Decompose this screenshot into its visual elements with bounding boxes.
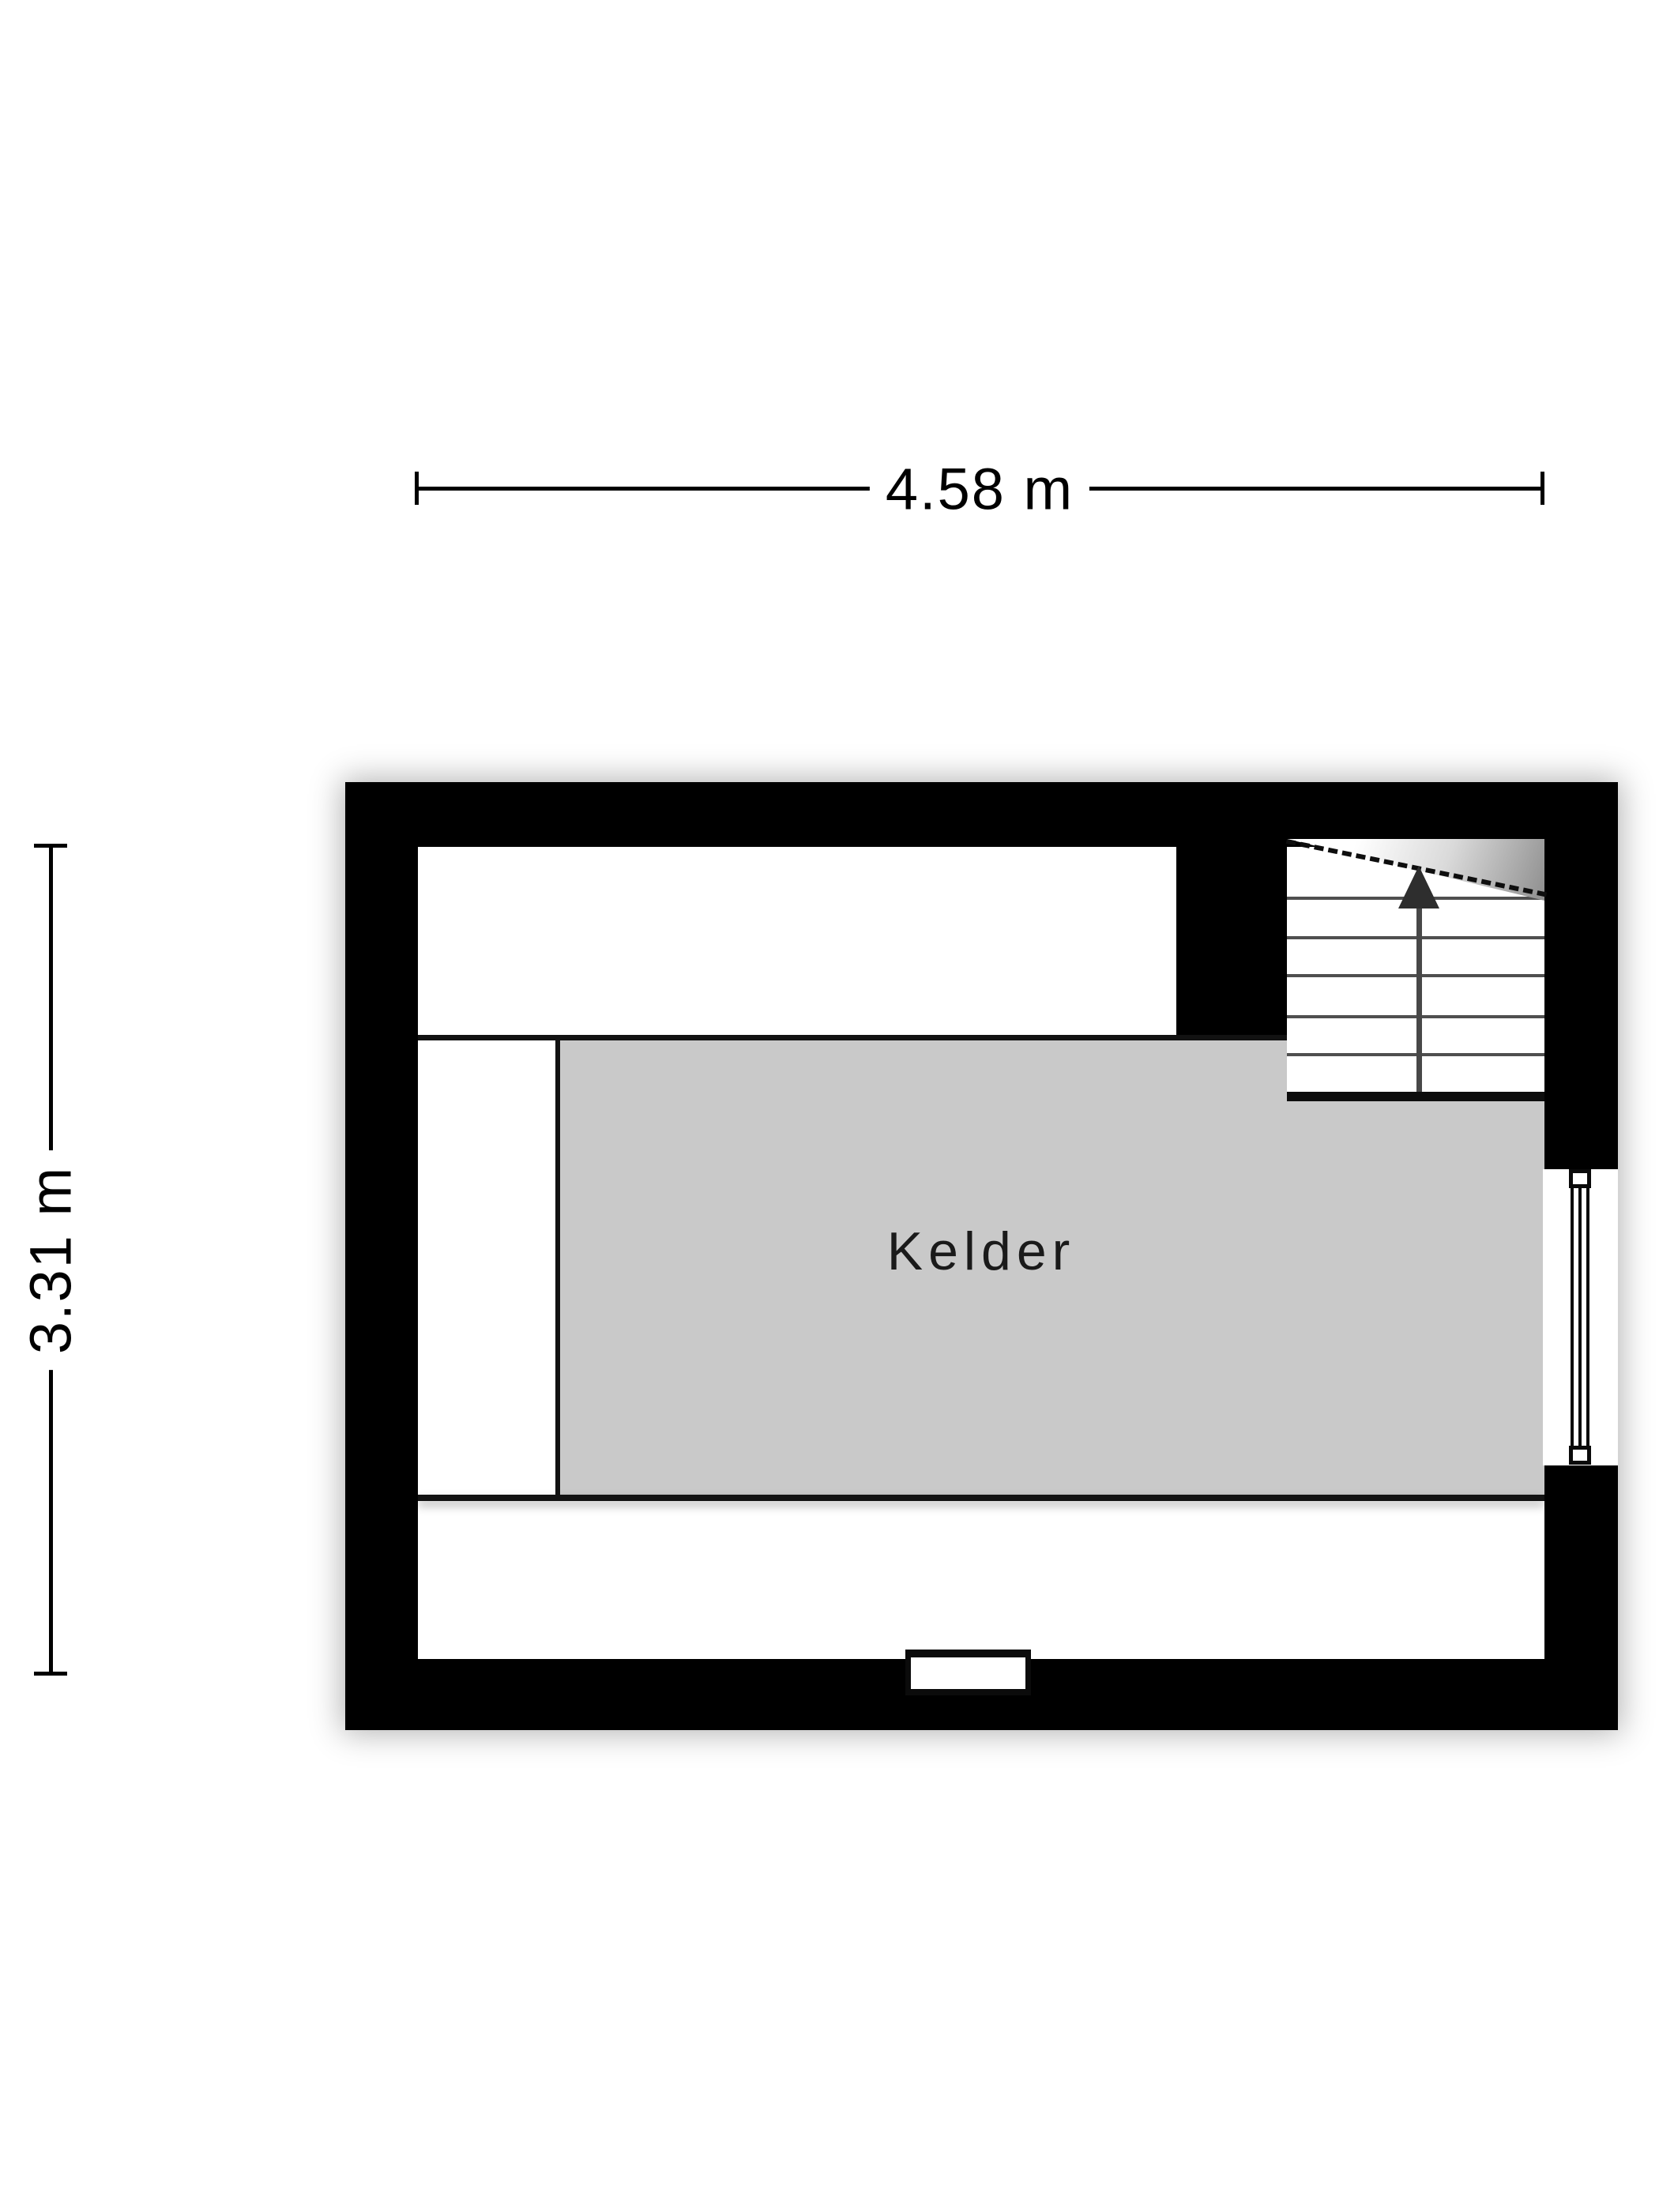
- room-kelder-bottom-line: [418, 1495, 1544, 1501]
- stairwell: [1287, 847, 1544, 1092]
- door-niche-frame: [905, 1650, 1031, 1695]
- interior: Kelder: [418, 847, 1544, 1659]
- stair-arrow-shaft: [1416, 901, 1422, 1092]
- height-dimension-tick-bottom: [34, 1672, 67, 1676]
- width-dimension-tick-right: [1540, 472, 1544, 505]
- outer-walls: Kelder: [345, 782, 1618, 1730]
- window-pane-line: [1586, 1188, 1589, 1446]
- stair-tread: [1287, 1053, 1544, 1056]
- window-pane-line: [1578, 1188, 1582, 1446]
- room-label: Kelder: [887, 1221, 1076, 1282]
- stair-tread: [1287, 936, 1544, 939]
- width-dimension-label: 4.58 m: [870, 456, 1089, 523]
- stair-up-arrow-icon: [1398, 866, 1439, 908]
- stair-tread: [1287, 1015, 1544, 1018]
- height-dimension-label: 3.31 m: [17, 1150, 85, 1370]
- width-dimension-tick-left: [415, 472, 419, 505]
- room-kelder-extension: [1287, 1092, 1544, 1501]
- window-opening: [1543, 1169, 1618, 1465]
- height-dimension-tick-top: [34, 844, 67, 848]
- wall-chunk: [1176, 847, 1287, 1040]
- stair-tread: [1287, 974, 1544, 977]
- window-frame-top-cap: [1569, 1169, 1591, 1188]
- window-frame-bottom-cap: [1569, 1446, 1591, 1465]
- window-pane-line: [1571, 1188, 1574, 1446]
- floorplan-canvas: 4.58 m 3.31 m Kelder: [0, 0, 1659, 2212]
- door-niche: [911, 1657, 1025, 1689]
